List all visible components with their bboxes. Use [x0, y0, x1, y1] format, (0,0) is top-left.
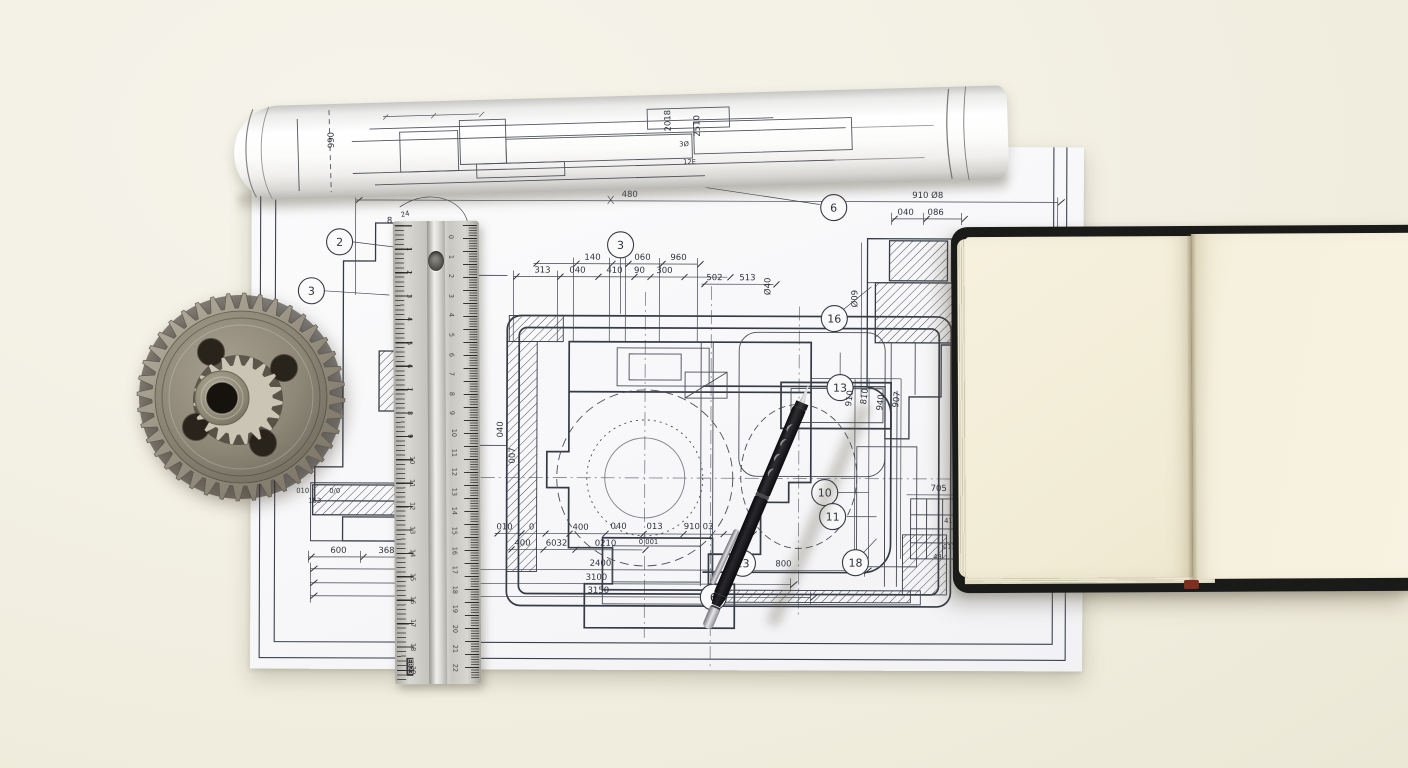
svg-text:705: 705 — [931, 484, 947, 494]
svg-text:0 001: 0 001 — [639, 538, 658, 546]
open-notebook — [951, 225, 1408, 593]
svg-text:8: 8 — [387, 216, 392, 226]
svg-text:040: 040 — [496, 421, 506, 437]
svg-text:18: 18 — [848, 557, 862, 570]
svg-text:513: 513 — [739, 273, 755, 283]
svg-text:600: 600 — [330, 546, 346, 556]
svg-text:12E: 12E — [683, 158, 696, 166]
svg-text:24: 24 — [400, 209, 410, 219]
svg-text:11: 11 — [826, 511, 840, 524]
svg-text:910: 910 — [844, 390, 856, 407]
svg-text:040: 040 — [569, 266, 585, 276]
svg-text:940: 940 — [875, 394, 887, 411]
notebook-left-page — [965, 236, 1193, 578]
svg-text:300: 300 — [656, 266, 672, 276]
svg-text:0: 0 — [529, 523, 534, 533]
svg-text:43: 43 — [933, 553, 942, 561]
spur-gear — [134, 290, 348, 504]
svg-text:90: 90 — [634, 266, 645, 276]
svg-text:810: 810 — [859, 388, 871, 405]
svg-text:007: 007 — [508, 447, 518, 463]
svg-text:6032: 6032 — [546, 539, 568, 549]
svg-text:410: 410 — [606, 266, 622, 276]
svg-text:140: 140 — [584, 253, 600, 263]
svg-text:086: 086 — [928, 208, 944, 218]
svg-text:368: 368 — [378, 546, 394, 556]
roll-drawing — [245, 86, 969, 200]
svg-text:3150: 3150 — [588, 586, 610, 596]
metal-ruler: 12345678910111213141516171819 0123456789… — [393, 221, 481, 684]
svg-text:Ø40: Ø40 — [762, 278, 773, 296]
svg-text:Ø09: Ø09 — [849, 290, 860, 308]
svg-text:013: 013 — [646, 522, 662, 532]
svg-text:2: 2 — [336, 236, 343, 249]
svg-text:960: 960 — [670, 253, 686, 263]
svg-text:400: 400 — [572, 523, 588, 533]
svg-text:040: 040 — [610, 522, 626, 532]
svg-text:060: 060 — [634, 253, 650, 263]
notebook-bookmark — [1184, 580, 1199, 589]
ruler-brand-mark: EB23 — [406, 658, 413, 676]
svg-text:040: 040 — [898, 208, 914, 218]
ruler-hang-hole — [428, 251, 444, 271]
svg-text:2510: 2510 — [692, 115, 703, 137]
desk-scene: 2 3 3 6 16 13 10 11 18 13 6 480 910 Ø8 0… — [0, 0, 1408, 768]
svg-text:010: 010 — [496, 522, 512, 532]
ruler-groove — [427, 221, 447, 684]
svg-text:907: 907 — [891, 391, 903, 408]
svg-text:910 03: 910 03 — [684, 522, 714, 532]
svg-text:313: 313 — [534, 266, 550, 276]
svg-text:2018: 2018 — [663, 110, 674, 132]
svg-text:3100: 3100 — [586, 573, 608, 583]
svg-text:6: 6 — [830, 202, 837, 215]
svg-text:0210: 0210 — [595, 539, 617, 549]
notebook-gutter — [1186, 234, 1198, 580]
svg-text:400: 400 — [514, 538, 530, 548]
ruler-scale-left-numbers: 12345678910111213141516171819 — [407, 221, 419, 684]
svg-text:2400: 2400 — [590, 559, 612, 569]
notebook-right-page — [1191, 233, 1408, 579]
svg-text:502: 502 — [706, 273, 722, 283]
gear-bore — [206, 382, 238, 414]
svg-text:16: 16 — [827, 313, 841, 326]
svg-text:3Ø: 3Ø — [679, 140, 690, 148]
svg-text:3: 3 — [617, 239, 624, 252]
svg-text:990: 990 — [327, 132, 337, 149]
